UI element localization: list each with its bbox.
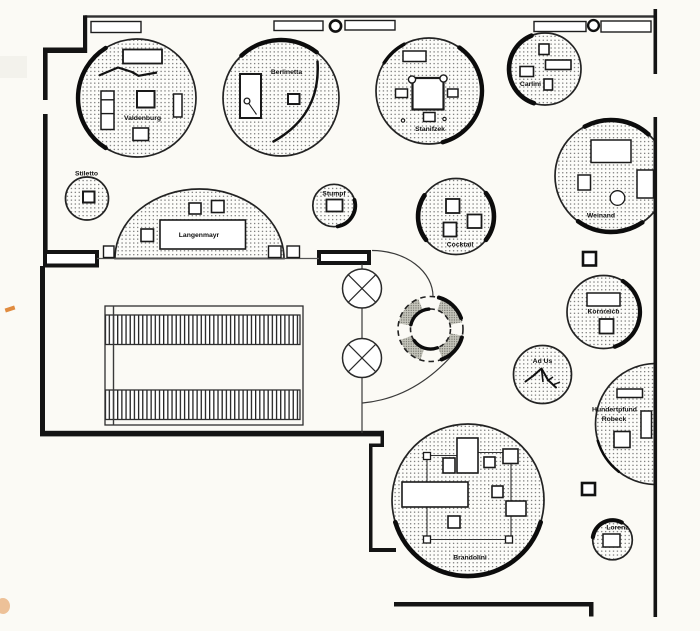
svg-text:Ad Us: Ad Us — [533, 358, 553, 365]
svg-text:Robeck: Robeck — [602, 416, 627, 423]
svg-text:Berlinetta: Berlinetta — [271, 69, 303, 76]
svg-text:Kornreich: Kornreich — [587, 309, 619, 316]
svg-text:Brandolini: Brandolini — [453, 555, 487, 562]
svg-text:Hundertpfund: Hundertpfund — [592, 407, 637, 414]
svg-text:Stiletto: Stiletto — [75, 171, 98, 178]
svg-text:Stumpf: Stumpf — [322, 191, 346, 198]
svg-text:Weinand: Weinand — [587, 213, 615, 220]
svg-text:Cocktail: Cocktail — [447, 242, 474, 249]
svg-text:Valdenburg: Valdenburg — [124, 115, 161, 122]
svg-text:Lorenz: Lorenz — [606, 525, 629, 532]
svg-text:Carlini: Carlini — [520, 81, 541, 88]
svg-text:Langenmayr: Langenmayr — [179, 232, 220, 239]
svg-text:Stanifzek: Stanifzek — [415, 126, 445, 133]
